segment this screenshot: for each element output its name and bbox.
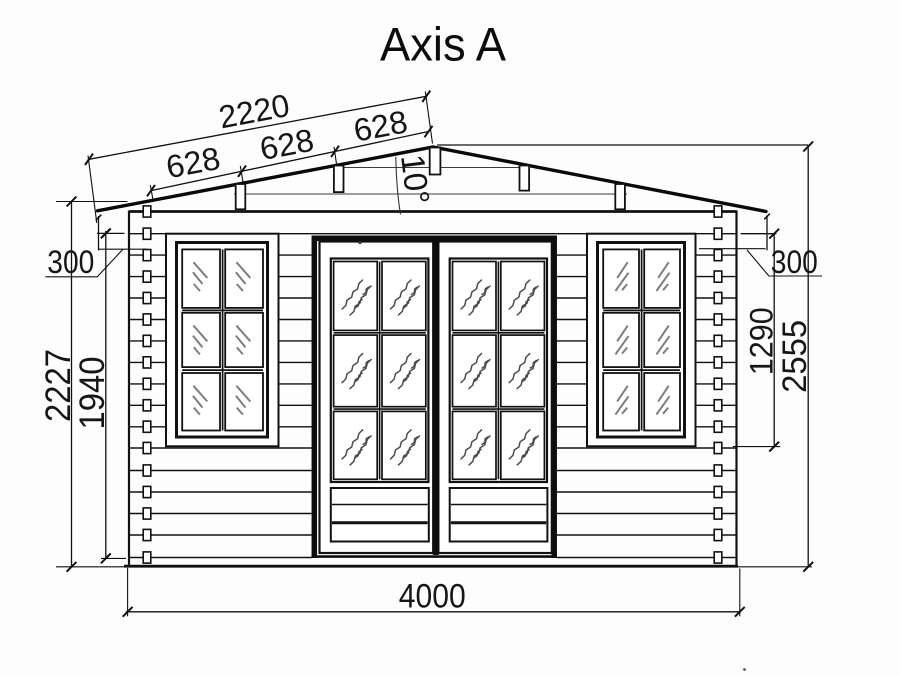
svg-text:4000: 4000 xyxy=(399,578,466,616)
svg-text:300: 300 xyxy=(771,244,818,280)
svg-text:1940: 1940 xyxy=(73,357,112,430)
svg-text:Axis A: Axis A xyxy=(380,18,507,71)
svg-text:300: 300 xyxy=(47,244,94,280)
svg-text:10°: 10° xyxy=(394,152,437,206)
svg-text:2555: 2555 xyxy=(776,320,814,393)
svg-text:1290: 1290 xyxy=(743,307,779,375)
